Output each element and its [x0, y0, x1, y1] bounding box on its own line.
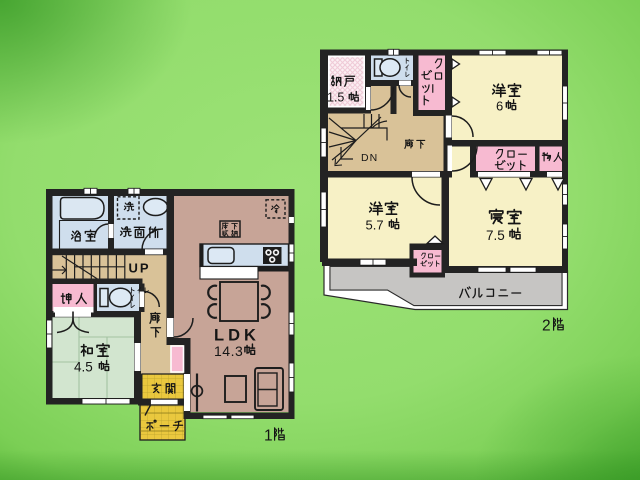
svg-text:UP: UP — [129, 261, 151, 276]
svg-text:4.5: 4.5 — [74, 360, 93, 375]
svg-text:14.3: 14.3 — [214, 343, 243, 359]
svg-text:1: 1 — [264, 428, 273, 445]
svg-text:DN: DN — [361, 152, 378, 164]
svg-text:LDK: LDK — [214, 327, 260, 345]
svg-text:2: 2 — [542, 318, 551, 335]
svg-text:7.5: 7.5 — [486, 228, 505, 243]
svg-text:1.5: 1.5 — [327, 91, 344, 105]
svg-text:5.7: 5.7 — [366, 218, 384, 233]
svg-text:6: 6 — [496, 99, 503, 114]
